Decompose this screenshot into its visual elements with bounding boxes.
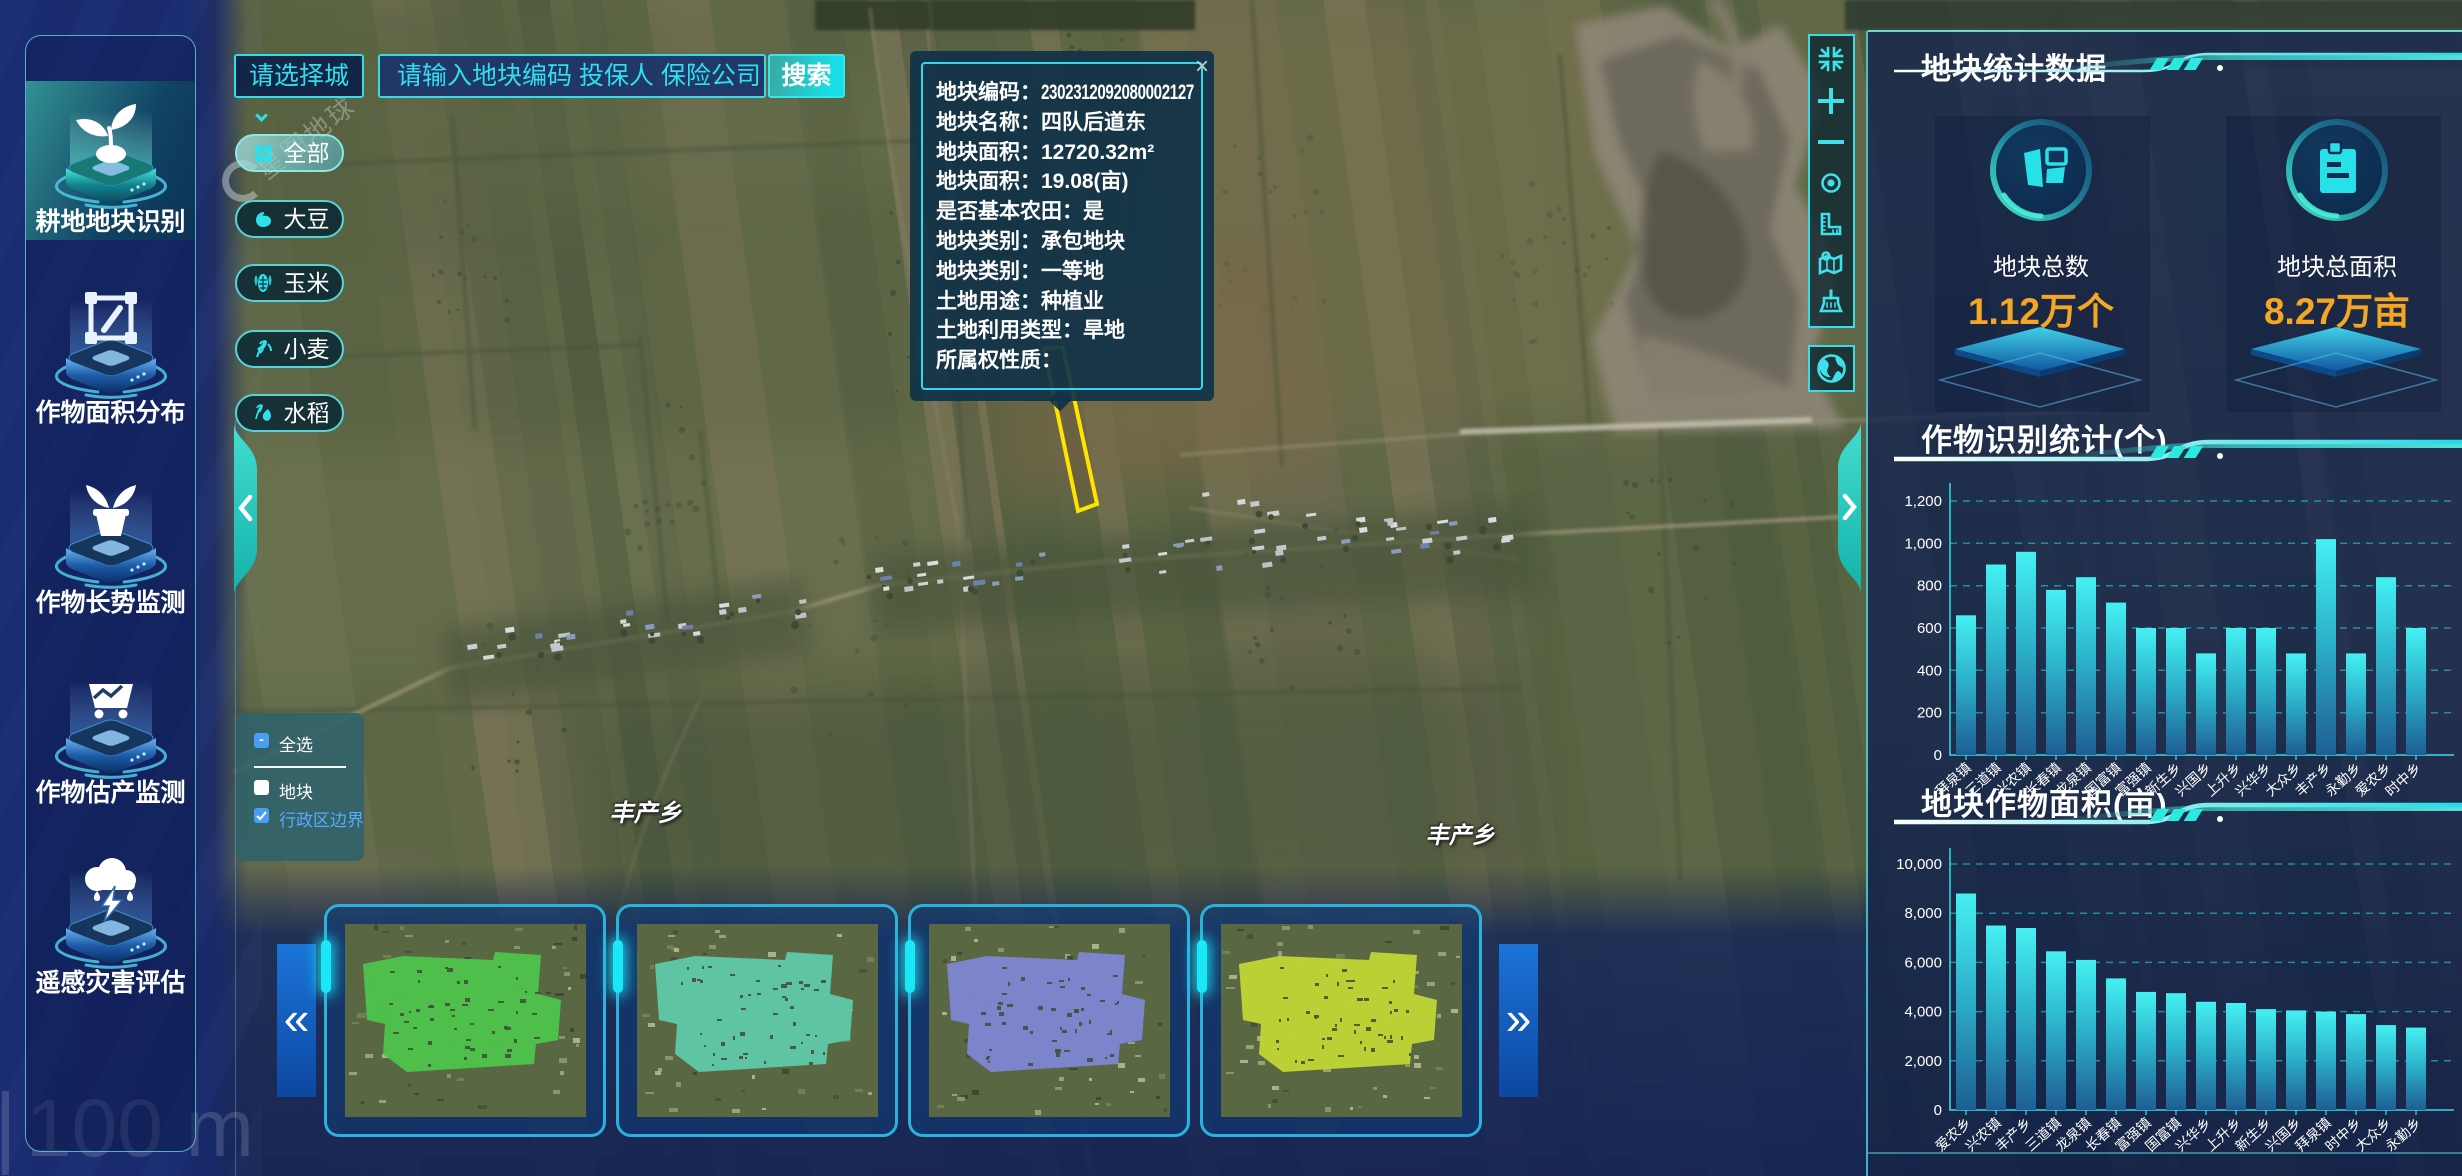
svg-text:4,000: 4,000 <box>1904 1004 1942 1021</box>
svg-text:1,000: 1,000 <box>1904 535 1942 552</box>
svg-text:2,000: 2,000 <box>1904 1053 1942 1070</box>
svg-text:10,000: 10,000 <box>1896 856 1942 873</box>
svg-text:0: 0 <box>1934 1102 1942 1119</box>
svg-text:6,000: 6,000 <box>1904 954 1942 971</box>
svg-text:8,000: 8,000 <box>1904 905 1942 922</box>
svg-text:1,200: 1,200 <box>1904 493 1942 510</box>
svg-text:0: 0 <box>1934 747 1942 764</box>
svg-text:800: 800 <box>1917 578 1942 595</box>
svg-text:600: 600 <box>1917 620 1942 637</box>
svg-text:400: 400 <box>1917 662 1942 679</box>
svg-text:200: 200 <box>1917 705 1942 722</box>
